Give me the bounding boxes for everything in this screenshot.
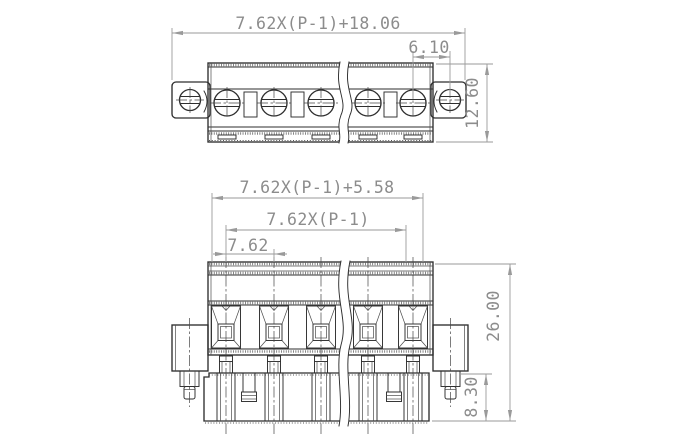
clamp-screw-4 <box>351 87 385 119</box>
mount-ear-left <box>172 82 210 118</box>
header-screw-right <box>387 373 402 402</box>
plug-base <box>204 373 429 423</box>
dim-label-body-width: 7.62X(P-1)+5.58 <box>239 178 394 197</box>
dim-label-plug-height: 8.30 <box>462 376 481 417</box>
dim-label-overall-width-top: 7.62X(P-1)+18.06 <box>235 14 400 33</box>
dim-pitch: 7.62 <box>213 236 287 262</box>
clamp-screw-1 <box>210 87 244 119</box>
clamp-screw-3 <box>304 87 338 119</box>
dim-label-overall-height: 26.00 <box>484 290 503 342</box>
mount-ear-right <box>431 82 466 118</box>
pole-centerlines <box>226 257 413 434</box>
front-body <box>208 262 433 355</box>
dim-label-pole-span: 7.62X(P-1) <box>266 210 369 229</box>
dim-plug-height: 8.30 <box>461 374 492 421</box>
dim-body-depth: 12.60 <box>436 64 493 142</box>
flange-left <box>172 318 208 407</box>
top-body <box>208 63 433 142</box>
front-break-line <box>339 261 353 426</box>
front-view: 7.62X(P-1)+5.58 7.62X(P-1) 7.62 26.00 8.… <box>172 178 516 434</box>
dim-label-mount-screw-offset: 6.10 <box>408 38 449 57</box>
ear-screw-left <box>176 87 204 113</box>
drawing-canvas: 7.62X(P-1)+18.06 6.10 12.60 <box>0 0 680 440</box>
engineering-drawing: 7.62X(P-1)+18.06 6.10 12.60 <box>0 0 680 440</box>
contact-pins <box>220 356 420 373</box>
clamp-screw-2 <box>257 87 291 119</box>
dim-label-pitch: 7.62 <box>227 236 268 255</box>
header-screw-left <box>242 373 257 402</box>
dim-label-body-depth: 12.60 <box>463 77 482 129</box>
top-view: 7.62X(P-1)+18.06 6.10 12.60 <box>172 14 493 143</box>
